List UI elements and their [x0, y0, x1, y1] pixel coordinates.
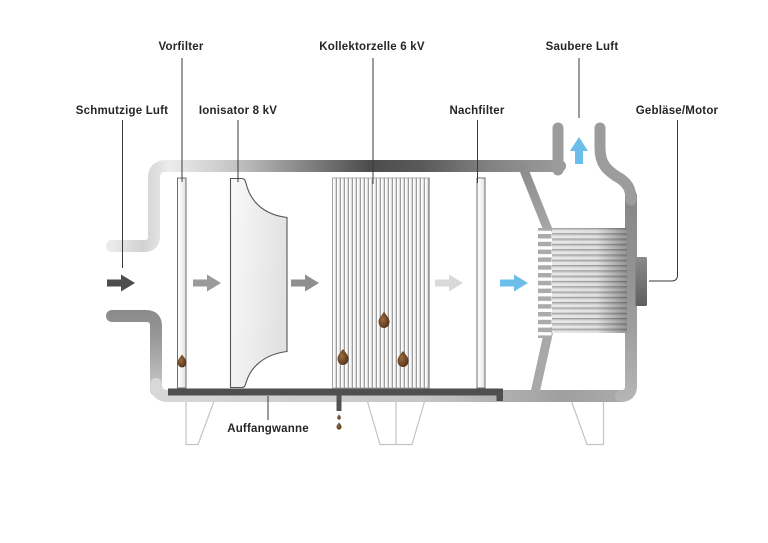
label-schmutzige-luft: Schmutzige Luft [76, 105, 168, 117]
motor-mount-bracket [636, 257, 648, 306]
drain-pipe [337, 395, 342, 411]
housing-inlet-lower-wall [112, 316, 156, 390]
after-vorfilter-arrow-icon [193, 275, 221, 292]
tray-end-lip [497, 389, 504, 402]
ionizer [231, 179, 288, 388]
drain-drip-1 [337, 414, 341, 419]
label-ionisator: Ionisator 8 kV [199, 105, 277, 117]
clean-air-arrow-icon [570, 137, 588, 164]
label-nachfilter: Nachfilter [449, 105, 504, 117]
label-geblaese-motor: Gebläse/Motor [636, 105, 718, 117]
after-kollektor-arrow-icon [435, 275, 463, 292]
after-ionisator-arrow-icon [291, 275, 319, 292]
label-saubere-luft: Saubere Luft [546, 41, 619, 53]
air-cleaner-schematic [0, 0, 768, 543]
dirty-air-arrow-icon [107, 275, 135, 292]
leader-geblaese-motor [649, 120, 678, 281]
label-vorfilter: Vorfilter [158, 41, 203, 53]
partition-lower-diagonal [535, 330, 549, 393]
label-kollektorzelle: Kollektorzelle 6 kV [319, 41, 424, 53]
leg-middle [367, 400, 425, 445]
diagram-canvas: Schmutzige Luft Vorfilter Ionisator 8 kV… [0, 0, 768, 543]
leg-right [571, 400, 604, 445]
chimney-right-wall [600, 128, 631, 200]
label-auffangwanne: Auffangwanne [227, 423, 309, 435]
drain-drip-2 [337, 422, 342, 429]
partition-upper-diagonal [524, 170, 548, 230]
after-nachfilter-arrow-icon [500, 275, 528, 292]
blower-grille [538, 228, 552, 338]
motor-fins-shading [552, 228, 627, 333]
leg-left [186, 400, 215, 445]
post-filter [477, 178, 485, 388]
